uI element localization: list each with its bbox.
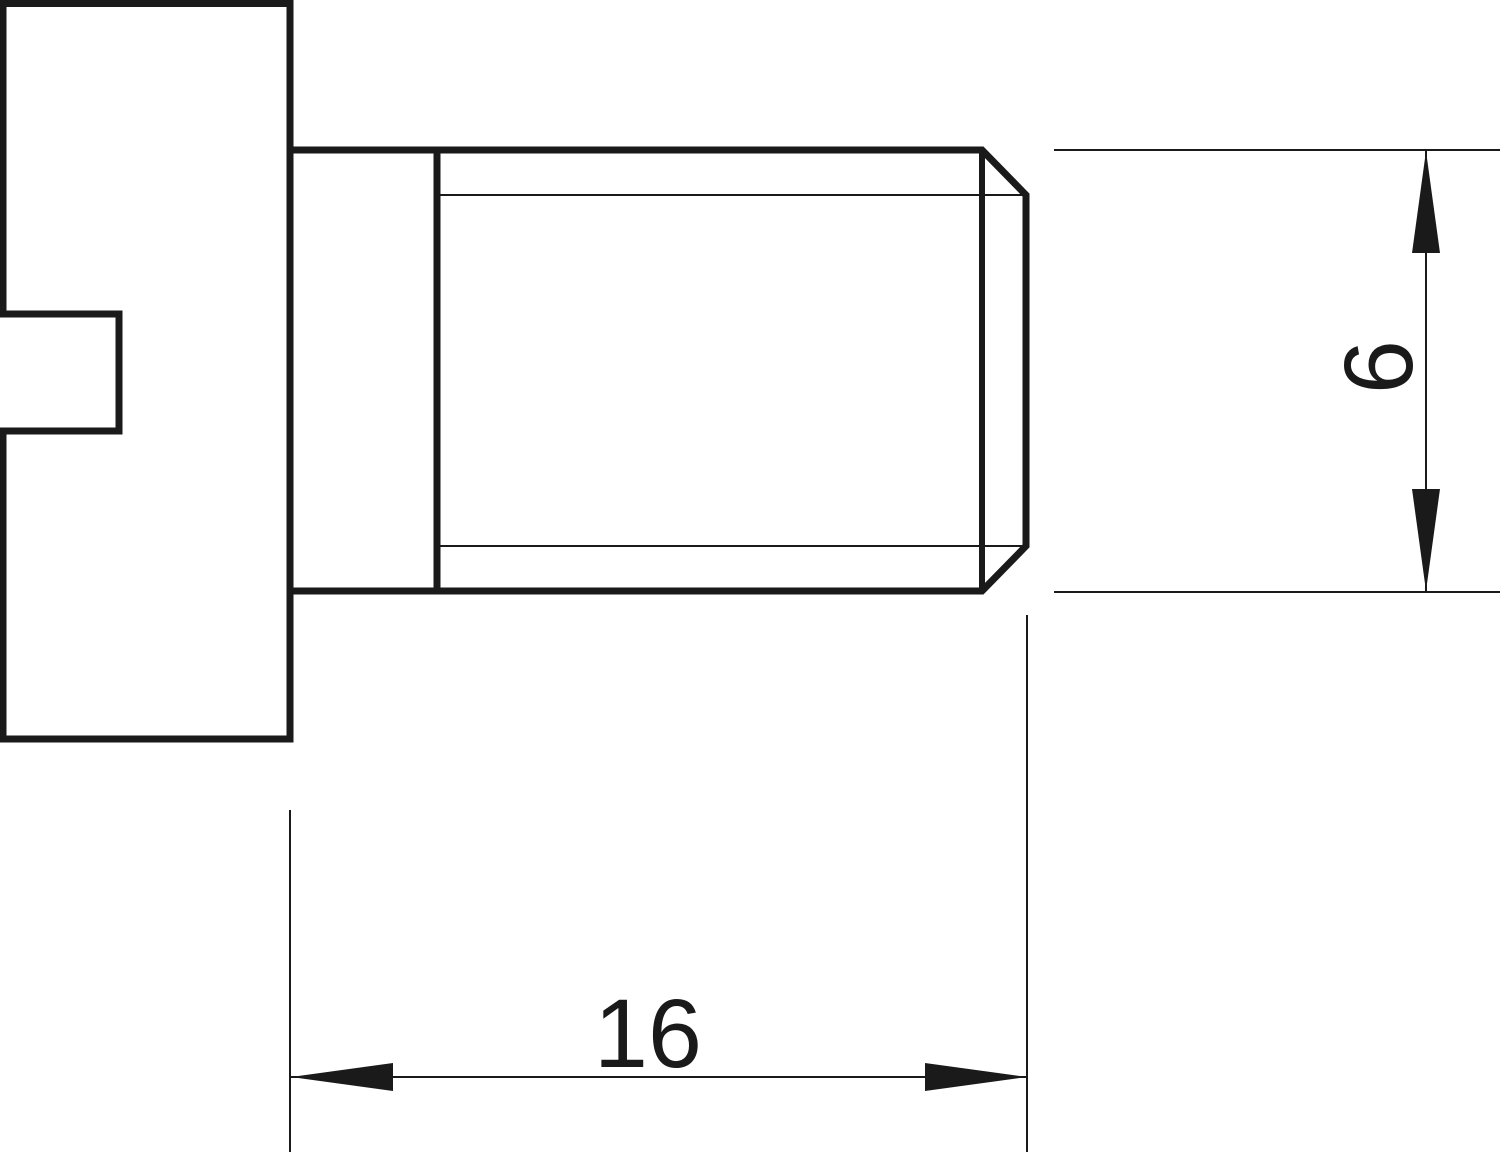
- screw-shank-outline: [290, 150, 1026, 591]
- dimension-label-diameter: 6: [1324, 340, 1433, 394]
- arrowhead-diameter-up: [1412, 151, 1440, 253]
- arrowhead-length-left: [291, 1063, 393, 1091]
- technical-drawing: 6 16: [0, 0, 1500, 1152]
- arrowhead-diameter-down: [1412, 489, 1440, 591]
- arrowhead-length-right: [925, 1063, 1027, 1091]
- screw-head-with-slot-outline: [3, 4, 290, 740]
- dimension-label-length: 16: [594, 979, 702, 1088]
- drawing-canvas: 6 16: [0, 0, 1500, 1152]
